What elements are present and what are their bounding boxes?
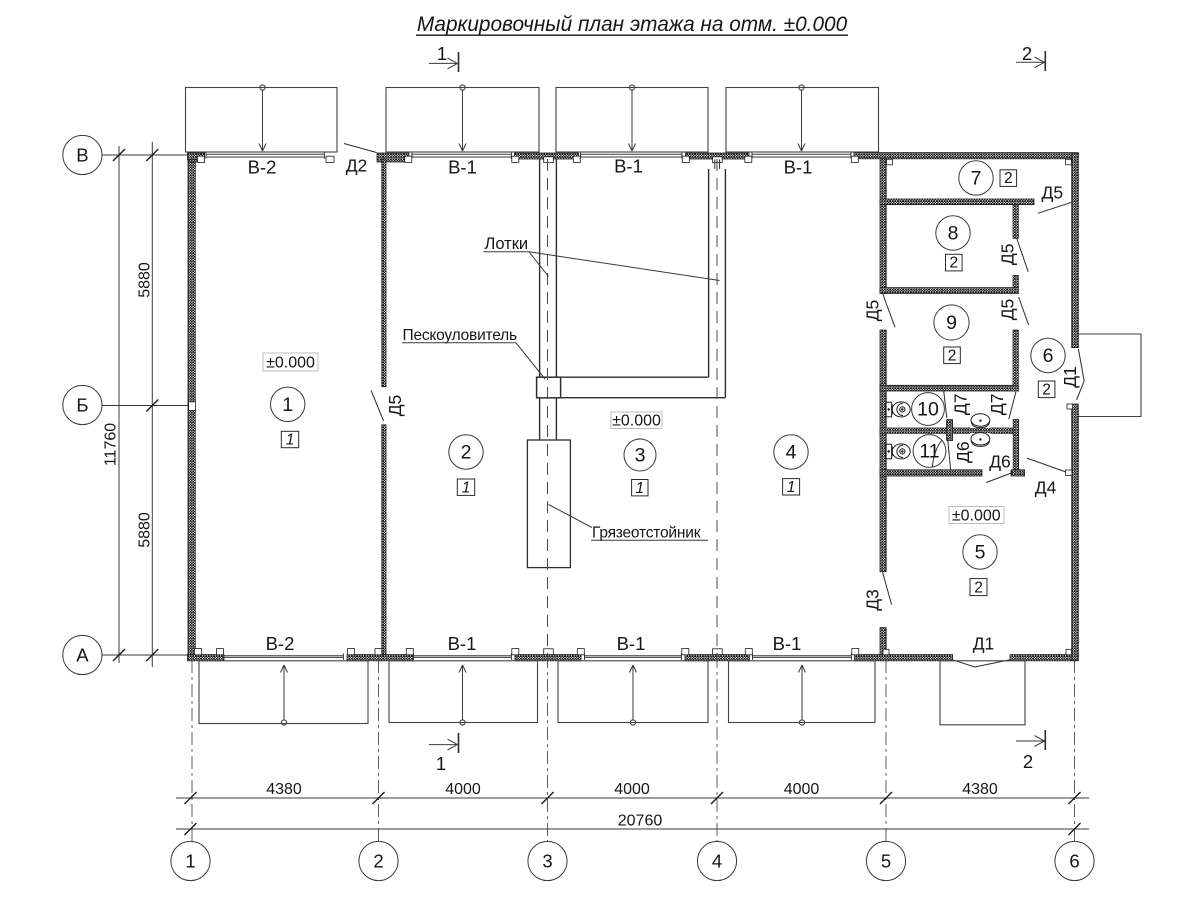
svg-text:2: 2 <box>1023 751 1033 772</box>
svg-text:2: 2 <box>1004 170 1013 187</box>
svg-text:11: 11 <box>919 441 939 463</box>
svg-text:В-1: В-1 <box>784 157 813 178</box>
svg-text:2: 2 <box>949 255 958 272</box>
svg-text:4: 4 <box>712 851 722 872</box>
svg-text:Д5: Д5 <box>1042 182 1064 202</box>
svg-text:1: 1 <box>635 480 644 497</box>
svg-text:Д5: Д5 <box>998 299 1018 321</box>
svg-text:Д5: Д5 <box>385 395 405 417</box>
svg-text:±0.000: ±0.000 <box>952 507 1001 524</box>
svg-text:1: 1 <box>185 851 195 872</box>
svg-text:Д5: Д5 <box>998 244 1018 266</box>
svg-text:Маркировочный план этажа на от: Маркировочный план этажа на отм. ±0.000 <box>417 13 848 36</box>
svg-text:20760: 20760 <box>618 813 663 830</box>
svg-text:В-1: В-1 <box>617 633 646 654</box>
svg-text:4380: 4380 <box>266 781 302 798</box>
svg-text:2: 2 <box>1042 381 1051 398</box>
svg-text:3: 3 <box>635 445 646 467</box>
svg-text:1: 1 <box>437 43 447 64</box>
svg-text:В-2: В-2 <box>266 633 295 654</box>
svg-text:6: 6 <box>1069 851 1079 872</box>
svg-text:Д1: Д1 <box>1060 366 1080 388</box>
svg-text:В: В <box>76 145 88 166</box>
svg-text:Лотки: Лотки <box>485 235 529 253</box>
svg-text:2: 2 <box>948 347 957 364</box>
svg-text:5: 5 <box>975 542 986 564</box>
svg-text:11760: 11760 <box>102 423 119 466</box>
svg-text:Д7: Д7 <box>987 394 1007 416</box>
svg-text:Д2: Д2 <box>346 156 368 176</box>
svg-text:2: 2 <box>974 579 983 596</box>
svg-text:4: 4 <box>786 442 797 464</box>
svg-text:4000: 4000 <box>784 781 820 798</box>
svg-text:Д5: Д5 <box>863 300 883 322</box>
svg-text:3: 3 <box>542 851 552 872</box>
svg-text:9: 9 <box>946 312 957 334</box>
svg-text:±0.000: ±0.000 <box>612 413 661 430</box>
svg-text:Пескоуловитель: Пескоуловитель <box>403 327 518 344</box>
svg-text:4000: 4000 <box>614 781 650 798</box>
svg-text:1: 1 <box>787 479 796 496</box>
svg-text:А: А <box>76 645 89 666</box>
svg-text:1: 1 <box>282 394 293 416</box>
svg-text:Д6: Д6 <box>953 441 973 463</box>
svg-text:Грязеотстойник: Грязеотстойник <box>592 525 701 542</box>
svg-text:1: 1 <box>286 432 295 449</box>
svg-text:В-1: В-1 <box>614 156 643 177</box>
svg-text:4380: 4380 <box>962 781 998 798</box>
svg-text:2: 2 <box>461 442 472 464</box>
svg-text:Д3: Д3 <box>863 589 883 611</box>
svg-text:7: 7 <box>971 168 982 190</box>
svg-text:Д7: Д7 <box>951 394 971 416</box>
svg-text:В-1: В-1 <box>448 157 477 178</box>
svg-text:В-2: В-2 <box>248 157 277 178</box>
svg-text:±0.000: ±0.000 <box>266 355 315 372</box>
svg-text:4000: 4000 <box>445 781 481 798</box>
svg-text:10: 10 <box>917 399 939 421</box>
svg-text:8: 8 <box>948 223 959 245</box>
svg-text:1: 1 <box>462 479 471 496</box>
svg-text:В-1: В-1 <box>773 633 802 654</box>
svg-text:В-1: В-1 <box>448 633 477 654</box>
svg-text:Д1: Д1 <box>973 634 995 654</box>
svg-text:5880: 5880 <box>137 512 154 548</box>
svg-text:6: 6 <box>1043 345 1054 367</box>
svg-text:5880: 5880 <box>137 262 154 298</box>
svg-text:1: 1 <box>436 753 446 774</box>
svg-text:2: 2 <box>1022 43 1032 64</box>
svg-text:5: 5 <box>881 851 891 872</box>
svg-text:Д4: Д4 <box>1035 478 1057 498</box>
svg-text:Д6: Д6 <box>989 452 1011 472</box>
svg-text:2: 2 <box>373 851 383 872</box>
svg-text:Б: Б <box>76 395 88 416</box>
